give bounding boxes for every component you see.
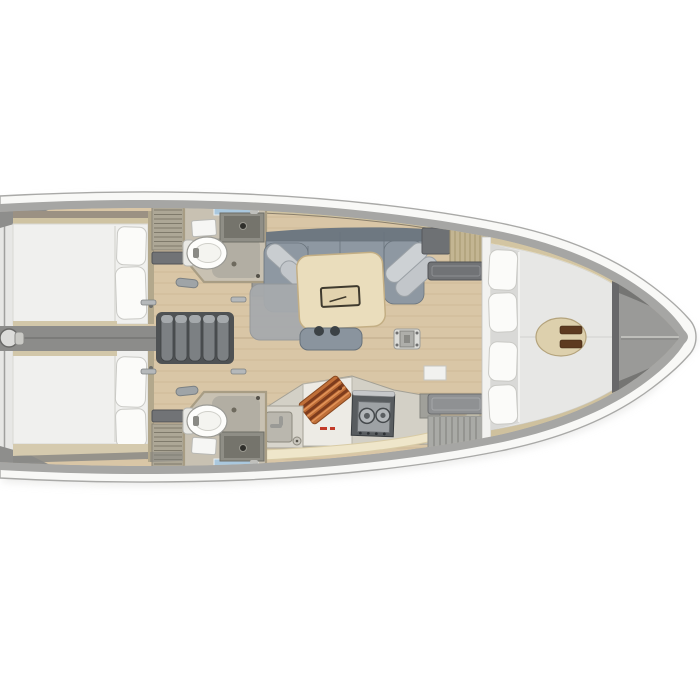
aft-cabin-port: Aft cabin (port) [13,211,154,334]
pillow [115,408,146,447]
pillow [488,342,517,382]
shelf-dark [428,262,484,280]
locker-dark [422,228,450,254]
stove [351,390,395,436]
berth-step-seat [536,318,586,356]
salon-stool [300,326,362,350]
shower-drain [232,408,237,413]
table-tray [321,286,360,307]
toilet [183,237,227,269]
bow-bulkhead [612,281,619,393]
pillow [488,384,518,424]
sink-drain [240,445,247,452]
salon-table [296,252,386,330]
pillow [488,249,518,290]
beam-trim-top [13,321,117,326]
galley-sink [262,406,303,448]
shower-drain [232,262,237,267]
louver-locker-top [152,206,184,250]
shelf-dark-top [152,252,184,264]
door-handle [256,274,260,278]
stove-handle [353,390,395,396]
pillow [115,356,147,407]
locker-white [424,366,446,380]
sink-drain [240,223,247,230]
toilet [183,405,227,437]
faucet [279,416,283,426]
floorplan-canvas: Sailing yacht interior layout - top-down… [0,0,700,700]
shelf-white [191,437,216,455]
pillow [116,227,146,266]
step-treads [161,315,229,361]
mast-step-fitting [394,329,420,349]
yacht-floorplan: Sailing yacht interior layout - top-down… [0,0,700,700]
pillow [115,266,147,319]
door-handle [256,396,260,400]
grab-rail [176,278,199,288]
shelf-white [191,219,216,237]
beam-trim-bottom [13,351,117,356]
shelf-dark-bottom [152,410,184,422]
pillow [488,293,517,333]
shelf-gray [428,394,484,414]
headboard-shelf-shadow [13,211,148,218]
fitting-cap [15,332,24,345]
aft-cabin-starboard: Aft cabin (starboard) [13,350,154,463]
grab-rail [176,386,199,396]
